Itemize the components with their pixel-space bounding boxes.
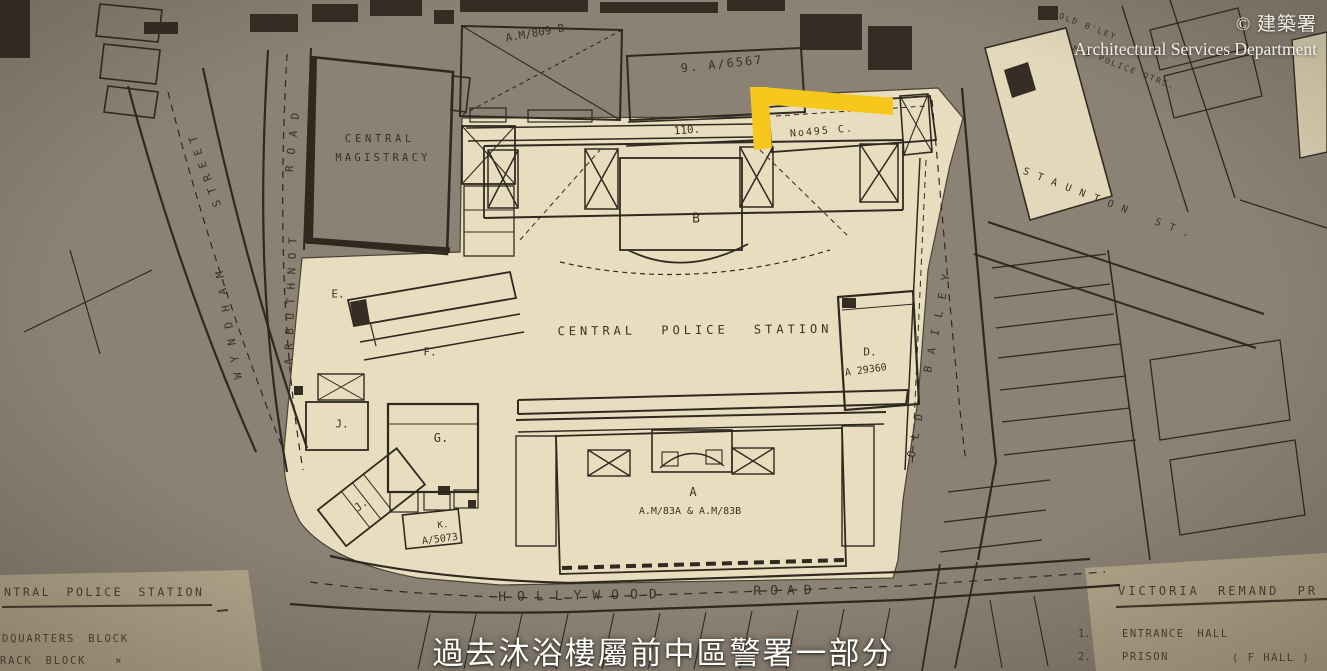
legend-right-title: VICTORIA REMAND PR xyxy=(1118,585,1318,597)
copyright-notice: © 建築署 Architectural Services Department xyxy=(1074,9,1317,60)
legend-left-item1: DQUARTERS BLOCK xyxy=(2,634,129,645)
copyright-english: Architectural Services Department xyxy=(1074,39,1317,60)
label-block-f: F. xyxy=(423,347,436,358)
label-road-hollywood-road: ROAD xyxy=(753,584,821,598)
legend-right-item1: ENTRANCE HALL xyxy=(1122,629,1229,640)
label-block-d: D. xyxy=(863,347,876,358)
legend-right-item2: PRISON xyxy=(1122,652,1169,663)
label-central-magistracy-2: MAGISTRACY xyxy=(335,153,430,164)
legend-right-item2-no: 2. xyxy=(1078,652,1091,663)
subtitle: 過去沐浴樓屬前中區警署一部分 xyxy=(433,628,895,671)
legend-left-mark: × xyxy=(115,655,122,666)
legend-left-item2: RACK BLOCK xyxy=(0,656,86,667)
video-frame: CENTRAL POLICE STATION CENTRAL MAGISTRAC… xyxy=(0,0,1327,671)
label-block-g: G. xyxy=(434,432,448,444)
label-block-k: K. xyxy=(437,521,449,531)
legend-right-item1-no: 1. xyxy=(1078,629,1091,640)
label-block-j1: J. xyxy=(335,419,348,430)
label-central-police-station: CENTRAL POLICE STATION xyxy=(557,323,832,337)
copyright-chinese: © 建築署 xyxy=(1074,9,1317,36)
label-road-hollywood: HOLLYWOOD xyxy=(498,588,668,604)
legend-left-title: NTRAL POLICE STATION xyxy=(4,587,204,599)
label-central-magistracy-1: CENTRAL xyxy=(345,134,415,145)
label-am83: A.M/83A & A.M/83B xyxy=(639,507,741,517)
label-110: 110. xyxy=(673,124,700,137)
label-block-e: E. xyxy=(331,289,344,300)
legend-right-item2-note: ( F HALL ) xyxy=(1232,653,1310,664)
label-block-b: B xyxy=(692,213,700,226)
label-block-a: A xyxy=(689,486,696,498)
